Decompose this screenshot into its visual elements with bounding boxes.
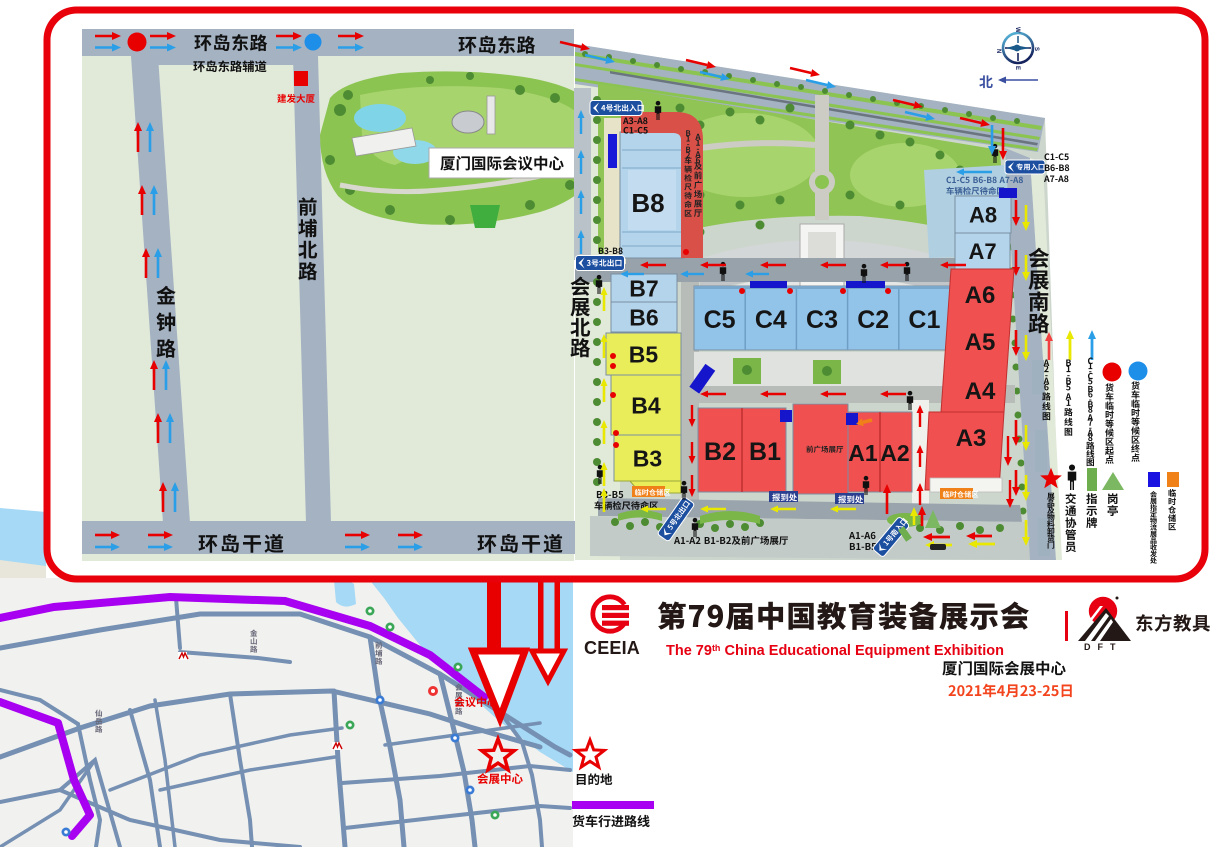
svg-text:B8: B8	[631, 188, 664, 218]
svg-text:A2: A2	[880, 440, 909, 466]
svg-text:The 79th China Educational Equ: The 79th China Educational Equipment Exh…	[666, 643, 1004, 659]
svg-text:A6: A6	[965, 282, 996, 309]
svg-text:B3: B3	[633, 445, 662, 471]
svg-text:CEEIA: CEEIA	[584, 638, 640, 658]
svg-text:C2: C2	[857, 306, 889, 334]
svg-text:C4: C4	[755, 306, 787, 334]
svg-text:A7: A7	[968, 239, 996, 264]
svg-text:E: E	[1014, 66, 1020, 70]
svg-text:B4: B4	[631, 392, 661, 418]
svg-text:C5: C5	[704, 306, 736, 334]
svg-text:A5: A5	[965, 329, 996, 356]
svg-text:B7: B7	[629, 275, 658, 301]
svg-text:S: S	[1033, 47, 1039, 51]
svg-text:C1: C1	[908, 306, 940, 334]
svg-text:A4: A4	[965, 378, 996, 405]
svg-text:N: N	[995, 49, 1001, 53]
svg-text:A1: A1	[848, 440, 878, 466]
svg-text:A3: A3	[956, 425, 987, 452]
svg-text:B2: B2	[704, 438, 736, 466]
svg-text:B1: B1	[749, 438, 781, 466]
svg-text:B5: B5	[629, 341, 659, 367]
svg-text:B6: B6	[629, 304, 658, 330]
svg-text:A8: A8	[969, 202, 997, 227]
svg-text:W: W	[1014, 27, 1020, 33]
svg-text:C3: C3	[806, 306, 838, 334]
svg-text:DFT: DFT	[1084, 642, 1123, 652]
